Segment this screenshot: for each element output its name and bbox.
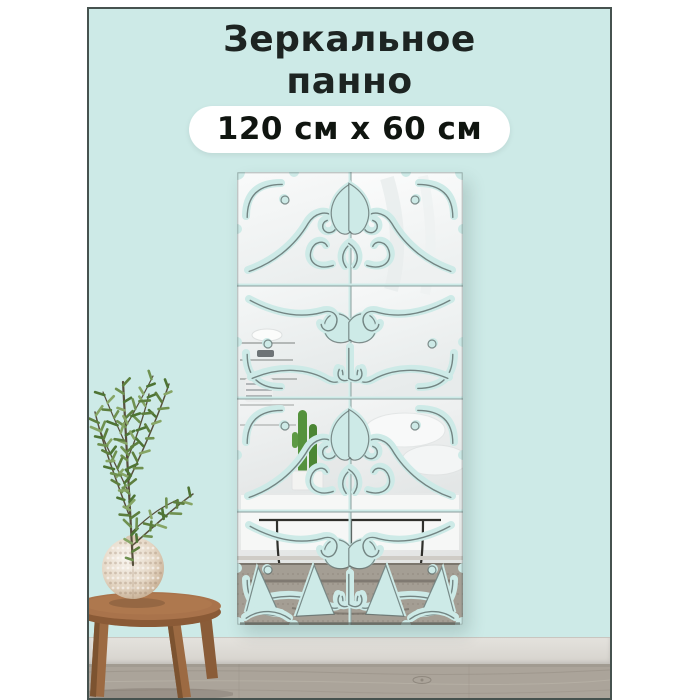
stool-plant-scene (87, 360, 233, 698)
plant-illustration (89, 371, 193, 565)
size-badge-row: 120 см x 60 см (89, 106, 610, 153)
product-title: Зеркальное панно (89, 19, 610, 103)
title-line-2: панно (89, 61, 610, 103)
size-badge: 120 см x 60 см (189, 106, 510, 153)
title-line-1: Зеркальное (89, 19, 610, 61)
product-card: { "card": { "title_line1": "Зеркальное",… (0, 0, 700, 700)
photo-frame: Зеркальное панно 120 см x 60 см (87, 7, 612, 700)
stool-top (87, 592, 221, 627)
mirror-panel-image (237, 172, 463, 625)
stool-shadow (87, 688, 233, 698)
